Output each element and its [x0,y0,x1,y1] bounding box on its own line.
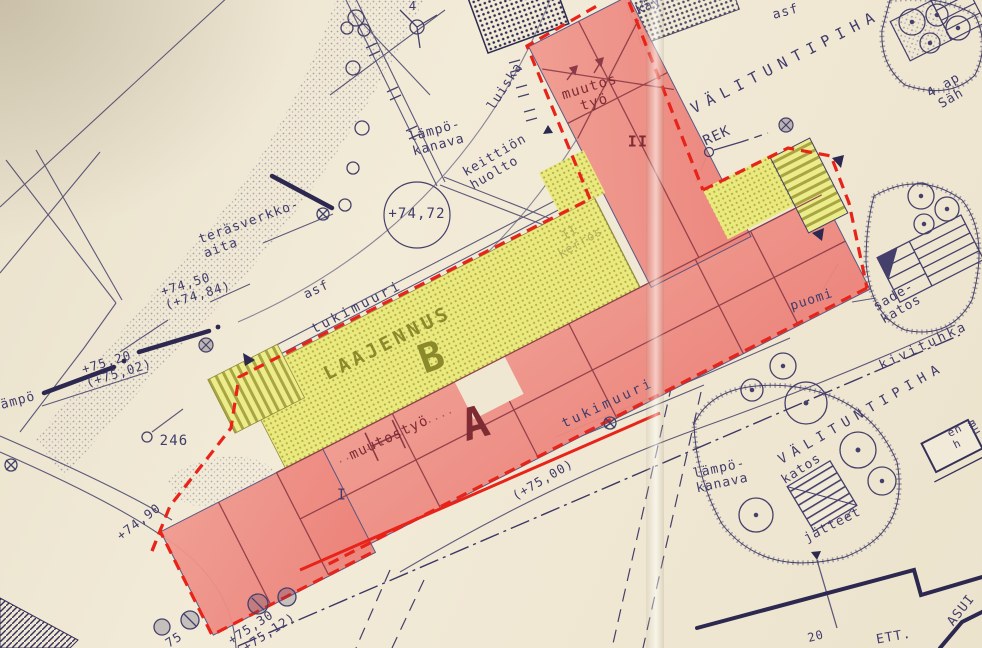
tree-id-circle [142,432,152,442]
tree-cluster-right-icon [908,183,959,234]
label-floor-ii: II [628,133,648,150]
label-corner-4: 4 [409,0,417,14]
label-tree-246: 246 [160,433,189,449]
site-plan-page: 4 asf VÄLITUNTIPIHA käy 4 ap Säh REK muu… [0,0,982,648]
label-elev-7472: +74,72 [388,206,445,222]
label-floor-i: I [337,486,347,503]
